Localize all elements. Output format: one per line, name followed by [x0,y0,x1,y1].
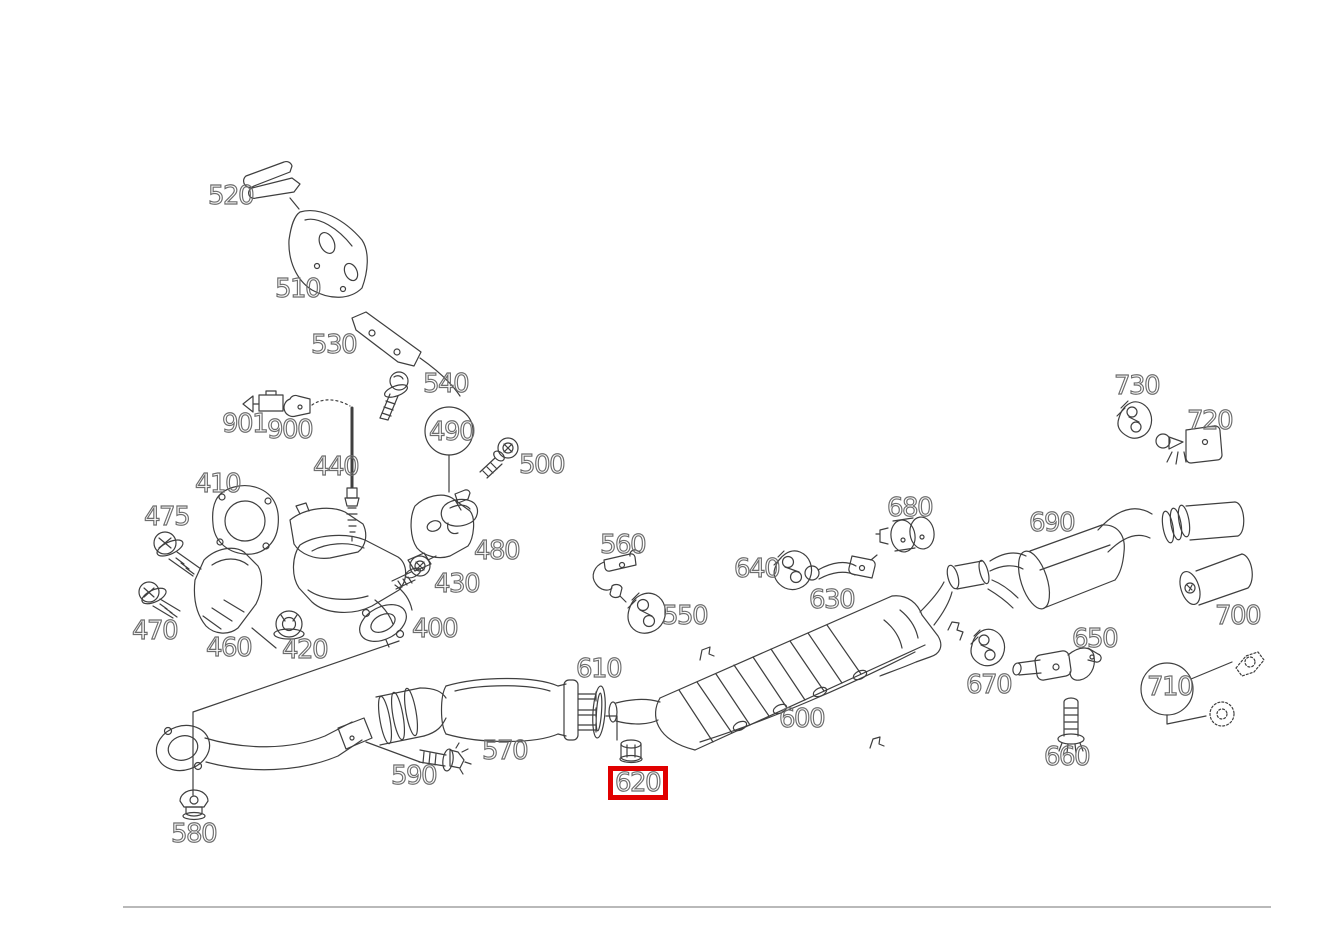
part-label-430[interactable]: 430 [434,571,479,597]
footer-divider-line [123,906,1271,908]
part-475-art [154,532,201,576]
part-670-art [971,629,1005,665]
part-label-530[interactable]: 530 [311,332,356,358]
part-label-400[interactable]: 400 [412,616,457,642]
part-580-art [180,790,208,820]
part-label-670[interactable]: 670 [966,672,1011,698]
part-label-410[interactable]: 410 [195,471,240,497]
part-label-720[interactable]: 720 [1187,408,1232,434]
part-label-480[interactable]: 480 [474,538,519,564]
part-label-730[interactable]: 730 [1114,373,1159,399]
part-label-440[interactable]: 440 [313,454,358,480]
part-label-560[interactable]: 560 [600,532,645,558]
part-630-art [805,555,877,580]
part-620-art [620,740,642,763]
part-label-700[interactable]: 700 [1215,603,1260,629]
part-label-520[interactable]: 520 [208,183,253,209]
part-label-680[interactable]: 680 [887,495,932,521]
part-label-490[interactable]: 490 [429,419,474,445]
part-label-901[interactable]: 901 [222,411,267,437]
part-label-620[interactable]: 620 [615,770,660,796]
part-label-640[interactable]: 640 [734,556,779,582]
part-690-art [945,502,1244,613]
part-500-art [480,438,518,478]
part-label-590[interactable]: 590 [391,763,436,789]
part-550-art [628,593,665,633]
part-700-art [1176,554,1252,607]
part-730-art [1117,401,1152,438]
part-label-630[interactable]: 630 [809,587,854,613]
part-label-550[interactable]: 550 [662,603,707,629]
part-label-540[interactable]: 540 [423,371,468,397]
diagram-canvas: 520 510 530 540 490 500 901 900 440 410 … [0,0,1326,938]
part-label-470[interactable]: 470 [132,618,177,644]
part-label-420[interactable]: 420 [282,637,327,663]
part-label-475[interactable]: 475 [144,504,189,530]
part-label-650[interactable]: 650 [1072,626,1117,652]
part-label-510[interactable]: 510 [275,276,320,302]
part-label-900[interactable]: 900 [267,417,312,443]
part-900-art [284,395,350,416]
part-540-art [380,372,409,420]
part-570-art [442,679,597,742]
part-480-art [411,495,474,557]
part-label-710[interactable]: 710 [1147,674,1192,700]
part-470-art [139,582,180,618]
part-label-610[interactable]: 610 [576,656,621,682]
part-label-580[interactable]: 580 [171,821,216,847]
part-label-690[interactable]: 690 [1029,510,1074,536]
part-label-600[interactable]: 600 [779,706,824,732]
part-430-art [392,556,430,589]
part-label-570[interactable]: 570 [482,738,527,764]
part-label-660[interactable]: 660 [1044,744,1089,770]
part-label-460[interactable]: 460 [206,635,251,661]
part-label-500[interactable]: 500 [519,452,564,478]
